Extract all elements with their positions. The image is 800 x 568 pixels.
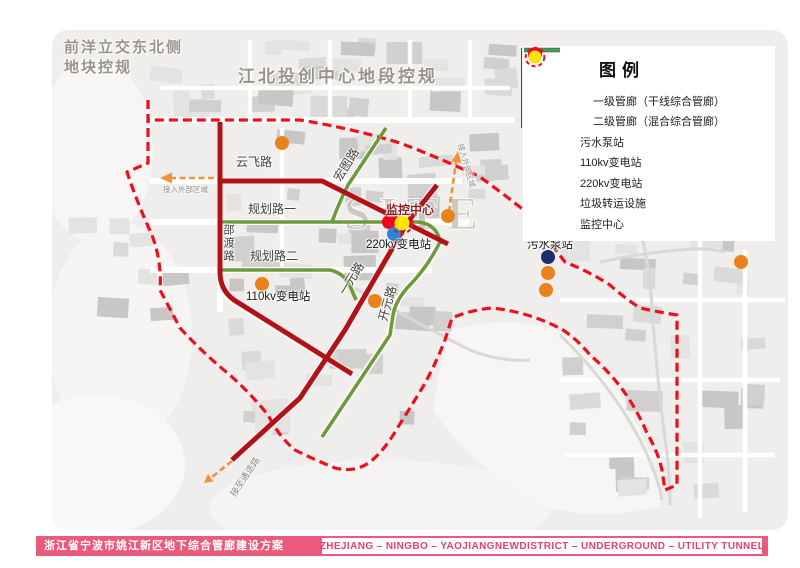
facility-label-110kv: 110kv变电站 [246, 288, 310, 304]
substation-110kv-dot-north [275, 136, 289, 150]
legend-title: 图例 [599, 56, 775, 81]
substation-dot-east [734, 255, 748, 269]
connection-label-external-west: 接入外部区域 [163, 184, 208, 195]
footer-title-english: ZHEJIANG – NINGBO – YAOJIANGNEWDISTRICT … [320, 541, 765, 552]
sewage-pump-dot [541, 250, 555, 264]
road-label-planning1: 规划路一 [248, 200, 296, 217]
legend-label: 监控中心 [580, 216, 624, 232]
legend-label: 污水泵站 [580, 134, 624, 150]
road-label-yunfei: 云飞路 [236, 153, 272, 170]
plan-note-north: 江北投创中心地段控规 [238, 62, 438, 87]
substation-dot-center-east [441, 209, 455, 223]
road-label-shaodu: 邵渡路 [220, 224, 236, 263]
legend-item-220kv: 220kv变电站 [523, 173, 775, 192]
plan-note-northwest-line2: 地块控规 [64, 58, 183, 78]
legend-item-monitoring-center: 监控中心 [523, 214, 775, 233]
road-label-planning2: 规划路二 [250, 247, 298, 264]
plan-sheet: SITE [0, 0, 800, 568]
footer-title-chinese: 浙江省宁波市姚江新区地下综合管廊建设方案 [44, 536, 284, 556]
substation-dot-pump-cluster1 [541, 266, 555, 280]
legend-item-waste-transfer: 垃圾转运设施 [523, 194, 775, 213]
legend-label: 垃圾转运设施 [580, 195, 646, 211]
substation-dot-pump-cluster2 [539, 283, 553, 297]
facility-label-monitoring-center: 监控中心 [386, 201, 434, 218]
footer-title-box: ZHEJIANG – NINGBO – YAOJIANGNEWDISTRICT … [322, 538, 762, 554]
legend-item-110kv: 110kv变电站 [523, 153, 775, 172]
legend-item-primary-tunnel: 一级管廊（干线综合管廊） [523, 91, 775, 110]
legend-item-secondary-tunnel: 二级管廊（混合综合管廊） [523, 112, 775, 131]
facility-label-220kv: 220kv变电站 [366, 236, 431, 252]
legend-label: 220kv变电站 [580, 175, 642, 191]
plan-note-northwest-line1: 前洋立交东北侧 [64, 38, 183, 58]
plan-note-northwest: 前洋立交东北侧 地块控规 [64, 38, 183, 78]
legend-label: 一级管廊（干线综合管廊） [593, 93, 725, 109]
legend-border-line [521, 48, 522, 128]
legend: 图例 一级管廊（干线综合管廊） 二级管廊（混合综合管廊） 污水泵站 110kv变… [523, 46, 775, 241]
legend-label: 110kv变电站 [580, 154, 642, 170]
legend-label: 二级管廊（混合综合管廊） [593, 113, 725, 129]
footer-title-bar: 浙江省宁波市姚江新区地下综合管廊建设方案 ZHEJIANG – NINGBO –… [36, 536, 768, 556]
legend-item-sewage-pump: 污水泵站 [523, 132, 775, 151]
